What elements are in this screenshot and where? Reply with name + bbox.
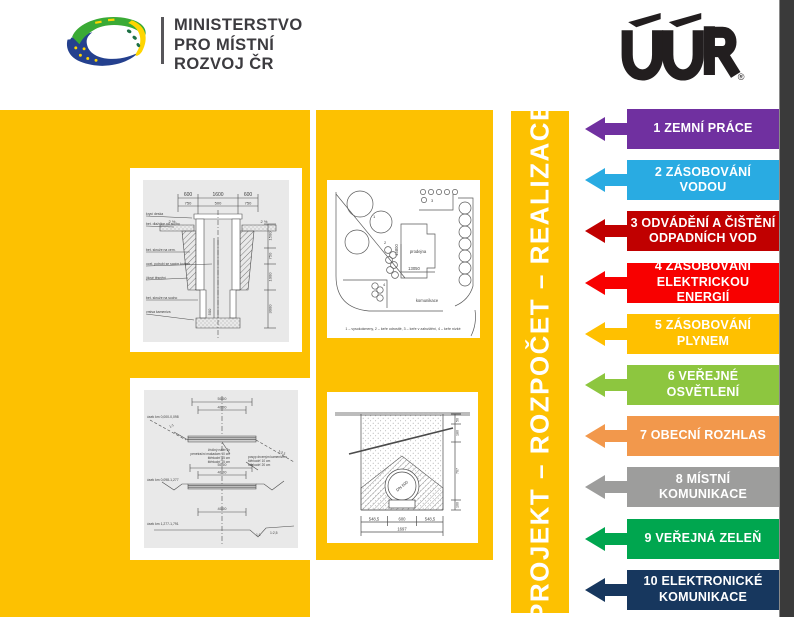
- siteplan-legend: 1 – vysokokmeny, 2 – keře odrostlé, 3 – …: [345, 327, 460, 331]
- left-arrow-icon: [585, 474, 627, 500]
- category-button[interactable]: 9 VEŘEJNÁ ZELEŇ: [627, 519, 779, 559]
- category-row[interactable]: 9 VEŘEJNÁ ZELEŇ: [585, 519, 779, 559]
- drawing-panel-trench: 548,5 600 548,5 1697 DN 600 50 180 767 1…: [327, 392, 478, 543]
- left-arrow-icon: [585, 167, 627, 193]
- slide-page: MINISTERSTVO PRO MÍSTNÍ ROZVOJ ČR ® PROJ…: [0, 0, 794, 617]
- category-label: 2 ZÁSOBOVÁNÍ VODOU: [630, 165, 776, 196]
- svg-text:úsek km 0,000-0,098: úsek km 0,000-0,098: [147, 415, 179, 419]
- category-button[interactable]: 6 VEŘEJNÉ OSVĚTLENÍ: [627, 365, 779, 405]
- category-row[interactable]: 2 ZÁSOBOVÁNÍ VODOU: [585, 160, 779, 200]
- trench-drawing: 548,5 600 548,5 1697 DN 600 50 180 767 1…: [327, 392, 478, 543]
- category-button[interactable]: 2 ZÁSOBOVÁNÍ VODOU: [627, 160, 779, 200]
- left-arrow-icon: [585, 321, 627, 347]
- category-button[interactable]: 3 ODVÁDĚNÍ A ČIŠTĚNÍ ODPADNÍCH VOD: [627, 211, 779, 251]
- category-label: 6 VEŘEJNÉ OSVĚTLENÍ: [630, 369, 776, 400]
- svg-text:2 %: 2 %: [261, 219, 268, 224]
- category-label: 4 ZÁSOBOVÁNÍ ELEKTRICKOU ENERGIÍ: [630, 259, 776, 306]
- svg-text:100: 100: [456, 502, 460, 508]
- category-label: 10 ELEKTRONICKÉ KOMUNIKACE: [630, 574, 776, 605]
- category-label: 5 ZÁSOBOVÁNÍ PLYNEM: [630, 318, 776, 349]
- svg-text:4000: 4000: [218, 405, 228, 410]
- svg-text:600: 600: [244, 192, 253, 198]
- svg-text:15800: 15800: [394, 244, 399, 256]
- svg-text:13050: 13050: [408, 266, 420, 271]
- category-row[interactable]: 5 ZÁSOBOVÁNÍ PLYNEM: [585, 314, 779, 354]
- siteplan-drawing: prodejna 13050 15800 komunikace 1 2 3 4 …: [327, 180, 480, 338]
- svg-text:750: 750: [245, 201, 252, 206]
- drawing-panel-well: 600 1600 600 750 500 750 2 % 2 % 500 kry…: [130, 168, 302, 352]
- category-label: 8 MÍSTNÍ KOMUNIKACE: [630, 472, 776, 503]
- category-label: 9 VEŘEJNÁ ZELEŇ: [645, 531, 762, 547]
- left-arrow-icon: [585, 116, 627, 142]
- svg-text:548,5: 548,5: [425, 517, 436, 522]
- category-row[interactable]: 8 MÍSTNÍ KOMUNIKACE: [585, 467, 779, 507]
- left-arrow-icon: [585, 372, 627, 398]
- left-arrow-icon: [585, 218, 627, 244]
- svg-text:štěrkodrť 15 cm: štěrkodrť 15 cm: [208, 460, 231, 464]
- svg-text:4: 4: [383, 282, 386, 287]
- svg-text:750: 750: [268, 252, 273, 259]
- svg-text:úsek km 1,277-1,791: úsek km 1,277-1,791: [147, 522, 179, 526]
- ministry-title-line2: PRO MÍSTNÍ: [174, 36, 303, 56]
- svg-text:2: 2: [384, 240, 387, 245]
- well-drawing: 600 1600 600 750 500 750 2 % 2 % 500 kry…: [130, 168, 302, 352]
- vertical-title-strip: PROJEKT – ROZPOČET – REALIZACE: [511, 111, 569, 613]
- svg-text:1600: 1600: [212, 192, 223, 198]
- svg-text:500: 500: [207, 308, 212, 315]
- svg-text:1697: 1697: [397, 527, 407, 532]
- svg-text:500: 500: [215, 201, 222, 206]
- mmr-ministry-logo-icon: [62, 12, 154, 70]
- category-button[interactable]: 7 OBECNÍ ROZHLAS: [627, 416, 779, 456]
- drawing-panel-road: 5000 4000 5000 4000 4000 úsek km 0,000-0…: [130, 378, 310, 560]
- category-label: 7 OBECNÍ ROZHLAS: [640, 428, 766, 444]
- svg-text:bet. skruže na sucho: bet. skruže na sucho: [146, 296, 177, 300]
- category-button[interactable]: 5 ZÁSOBOVÁNÍ PLYNEM: [627, 314, 779, 354]
- uur-registered-mark: ®: [738, 72, 745, 82]
- svg-text:1:1: 1:1: [256, 533, 261, 537]
- ministry-title-line1: MINISTERSTVO: [174, 16, 303, 36]
- svg-text:5000: 5000: [218, 396, 228, 401]
- siteplan-road-label: komunikace: [416, 298, 439, 303]
- svg-text:4000: 4000: [218, 506, 228, 511]
- left-arrow-icon: [585, 577, 627, 603]
- svg-text:1500: 1500: [268, 231, 273, 241]
- uur-logo-icon: ®: [615, 10, 751, 82]
- svg-text:bet. skruže na cem.: bet. skruže na cem.: [146, 248, 176, 252]
- svg-text:3: 3: [431, 198, 434, 203]
- svg-text:600: 600: [399, 517, 407, 522]
- svg-text:180: 180: [456, 430, 460, 436]
- category-button[interactable]: 8 MÍSTNÍ KOMUNIKACE: [627, 467, 779, 507]
- svg-text:štěrkodrť 20 cm: štěrkodrť 20 cm: [248, 463, 271, 467]
- road-drawing: 5000 4000 5000 4000 4000 úsek km 0,000-0…: [130, 378, 310, 560]
- siteplan-building-label: prodejna: [410, 249, 427, 254]
- svg-text:750: 750: [185, 201, 192, 206]
- svg-text:úsek km 0,098-1,277: úsek km 0,098-1,277: [147, 478, 179, 482]
- svg-text:bet. dlaždice na sucho: bet. dlaždice na sucho: [146, 222, 180, 226]
- category-label: 3 ODVÁDĚNÍ A ČIŠTĚNÍ ODPADNÍCH VOD: [630, 216, 776, 247]
- svg-text:3000: 3000: [268, 304, 273, 314]
- svg-text:krycí deska: krycí deska: [146, 212, 163, 216]
- left-arrow-icon: [585, 526, 627, 552]
- category-label: 1 ZEMNÍ PRÁCE: [653, 121, 752, 137]
- svg-text:ocel. potrubí se sacím košem: ocel. potrubí se sacím košem: [146, 262, 190, 266]
- ministry-title-line3: ROZVOJ ČR: [174, 55, 303, 75]
- left-arrow-icon: [585, 270, 627, 296]
- category-button[interactable]: 4 ZÁSOBOVÁNÍ ELEKTRICKOU ENERGIÍ: [627, 263, 779, 303]
- header-divider: [161, 17, 164, 64]
- ministry-title: MINISTERSTVO PRO MÍSTNÍ ROZVOJ ČR: [174, 16, 303, 75]
- category-list: 1 ZEMNÍ PRÁCE 2 ZÁSOBOVÁNÍ VODOU 3 ODVÁD…: [585, 109, 779, 610]
- svg-text:1000: 1000: [268, 272, 273, 282]
- category-row[interactable]: 4 ZÁSOBOVÁNÍ ELEKTRICKOU ENERGIÍ: [585, 263, 779, 303]
- category-button[interactable]: 1 ZEMNÍ PRÁCE: [627, 109, 779, 149]
- strip-title: PROJEKT – ROZPOČET – REALIZACE: [511, 111, 569, 613]
- drawing-panel-siteplan: prodejna 13050 15800 komunikace 1 2 3 4 …: [327, 180, 480, 338]
- svg-text:1:2,5: 1:2,5: [270, 531, 278, 535]
- category-row[interactable]: 1 ZEMNÍ PRÁCE: [585, 109, 779, 149]
- svg-text:vrstva kameniva: vrstva kameniva: [146, 310, 171, 314]
- svg-text:1: 1: [373, 214, 376, 219]
- category-row[interactable]: 10 ELEKTRONICKÉ KOMUNIKACE: [585, 570, 779, 610]
- category-button[interactable]: 10 ELEKTRONICKÉ KOMUNIKACE: [627, 570, 779, 610]
- app-background-edge: [779, 0, 794, 617]
- svg-text:jílové těsnění: jílové těsnění: [145, 276, 166, 280]
- svg-text:4000: 4000: [218, 470, 228, 475]
- category-row[interactable]: 3 ODVÁDĚNÍ A ČIŠTĚNÍ ODPADNÍCH VOD: [585, 211, 779, 251]
- svg-text:767: 767: [456, 468, 460, 474]
- svg-text:50: 50: [456, 418, 460, 422]
- category-row[interactable]: 6 VEŘEJNÉ OSVĚTLENÍ: [585, 365, 779, 405]
- left-arrow-icon: [585, 423, 627, 449]
- svg-text:548,5: 548,5: [369, 517, 380, 522]
- svg-text:600: 600: [184, 192, 193, 198]
- category-row[interactable]: 7 OBECNÍ ROZHLAS: [585, 416, 779, 456]
